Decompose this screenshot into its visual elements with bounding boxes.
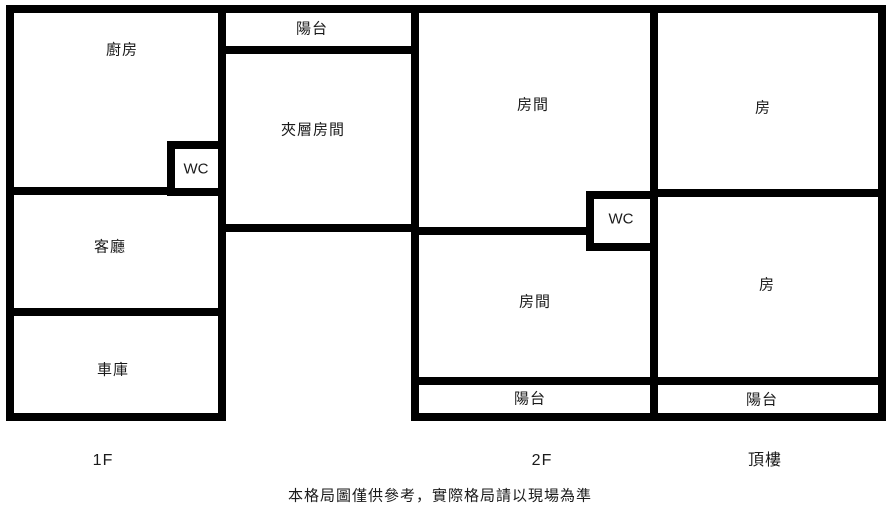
garage-label: 車庫 — [97, 363, 129, 378]
floor-label-1f: 1F — [93, 453, 114, 469]
room-roof-bottom-label: 房 — [759, 278, 775, 293]
mezzanine-label: 夾層房間 — [281, 123, 345, 138]
room-roof-top-label: 房 — [755, 101, 771, 116]
floor-label-roof: 頂樓 — [748, 453, 782, 469]
bedroom-2f-bottom-label: 房間 — [519, 295, 551, 310]
balcony-2f-label: 陽台 — [514, 392, 546, 407]
living-room-label: 客廳 — [94, 240, 126, 255]
bedroom-2f-top-label: 房間 — [517, 98, 549, 113]
floor-label-2f: 2F — [532, 453, 553, 469]
kitchen-label: 廚房 — [106, 43, 138, 58]
wc-1f-label: WC — [184, 162, 209, 177]
disclaimer-text: 本格局圖僅供參考，實際格局請以現場為準 — [288, 489, 592, 504]
wc-2f-label: WC — [609, 212, 634, 227]
balcony-1f-label: 陽台 — [296, 22, 328, 37]
room-mezzanine — [218, 46, 419, 232]
floor-plan-canvas: 廚房 陽台 夾層房間 WC 客廳 車庫 房間 WC 房間 陽台 房 房 陽台 1… — [0, 0, 889, 510]
balcony-roof-label: 陽台 — [746, 393, 778, 408]
